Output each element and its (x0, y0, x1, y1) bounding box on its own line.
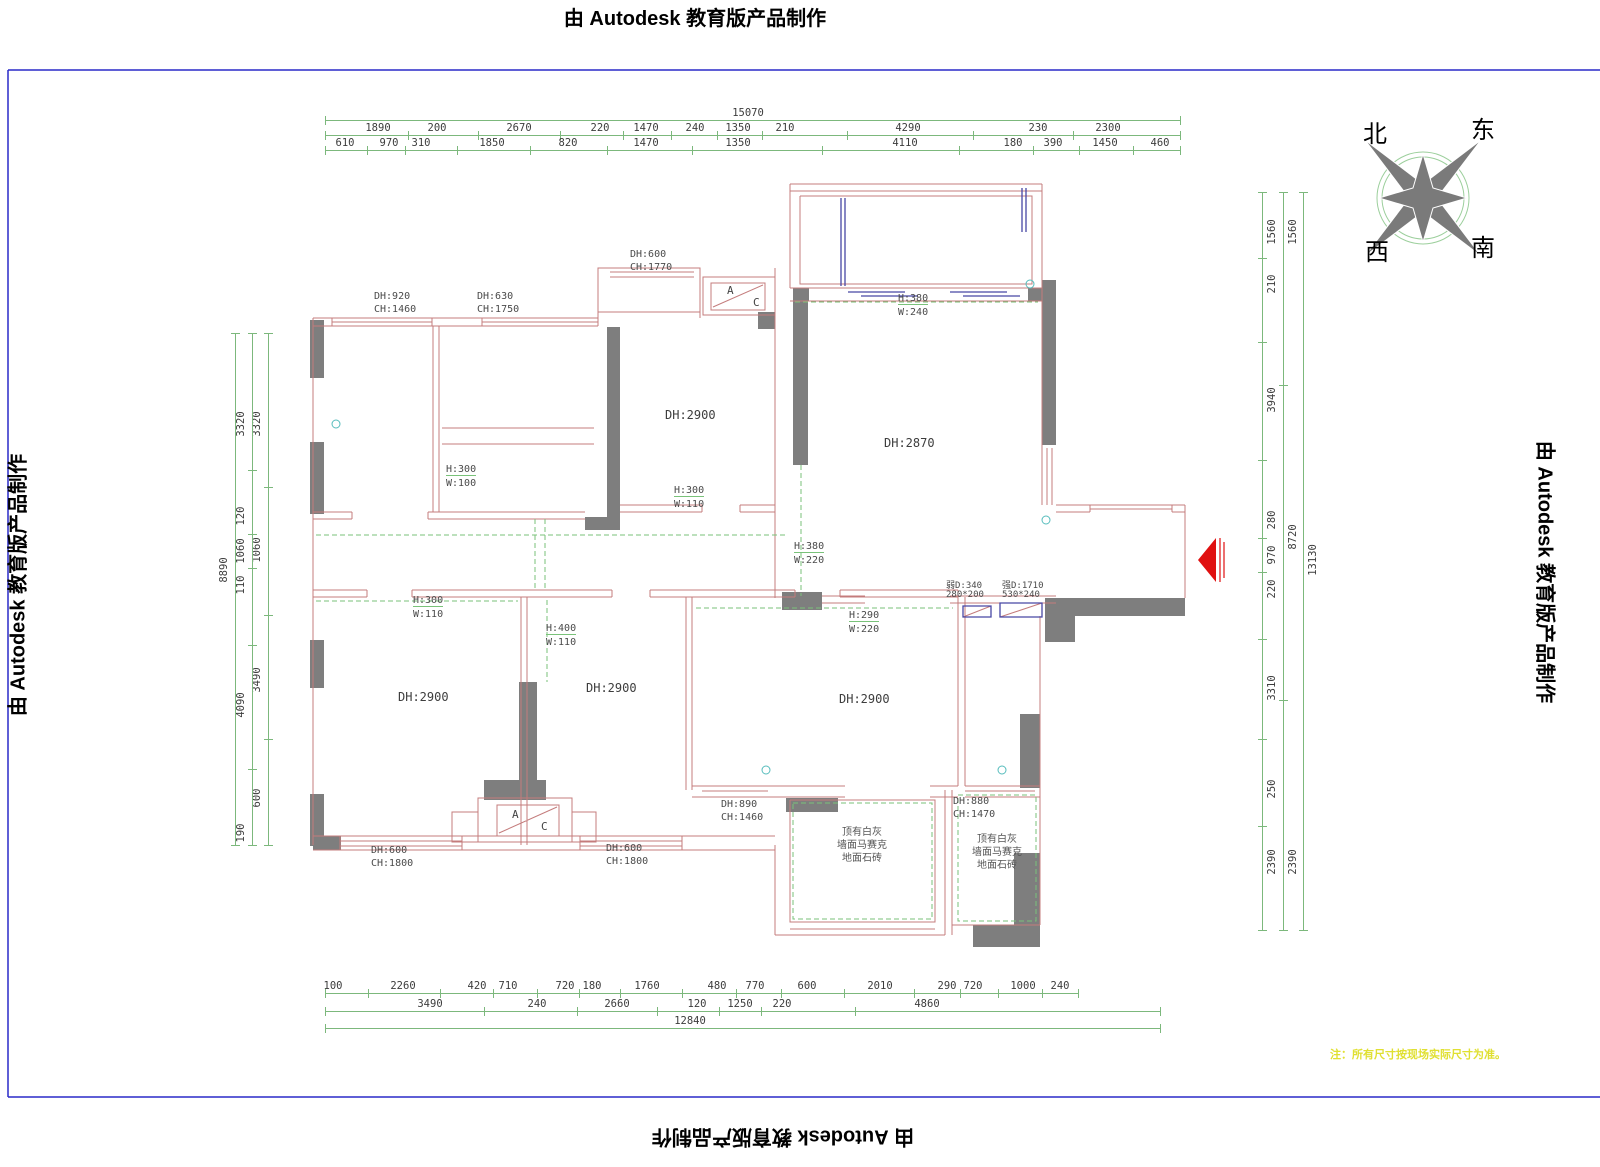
dim-tick (1078, 989, 1079, 998)
dim-tick (1042, 989, 1043, 998)
dim-value: 180 (1004, 137, 1023, 149)
dim-value: 3310 (1266, 675, 1278, 700)
dim-tick (248, 534, 257, 535)
dim-tick (248, 568, 257, 569)
dim-tick (325, 131, 326, 140)
plan-label: W:240 (898, 307, 928, 318)
plan-label: DH:600 (606, 843, 642, 854)
dim-line-top-row1 (325, 135, 1180, 136)
dim-value: 4290 (895, 122, 920, 134)
dim-tick (264, 739, 273, 740)
plan-label: W:220 (794, 555, 824, 566)
dim-value: 280 (1266, 511, 1278, 530)
dim-line-top-row2 (325, 150, 1180, 151)
dim-tick (692, 146, 693, 155)
dim-line-left-col-total (235, 333, 236, 845)
plan-label: H:400 (546, 623, 576, 635)
dim-value: 1000 (1010, 980, 1035, 992)
dim-value: 3320 (235, 411, 247, 436)
dim-tick (325, 116, 326, 125)
plan-label: DH:630 (477, 291, 513, 302)
dim-tick (248, 470, 257, 471)
dim-tick (325, 1024, 326, 1033)
balcony-doors-blue (841, 188, 1042, 617)
dim-tick (248, 645, 257, 646)
dim-line-right-col-total (1303, 192, 1304, 930)
plan-label: CH:1750 (477, 304, 519, 315)
dim-tick (1258, 639, 1267, 640)
site-dimension-note: 注：所有尺寸按现场实际尺寸为准。 (1330, 1046, 1506, 1062)
dim-value: 240 (528, 998, 547, 1010)
dim-value: 770 (746, 980, 765, 992)
plan-label: W:100 (446, 478, 476, 489)
dim-value: 100 (324, 980, 343, 992)
plan-label: 地面石砖 (842, 849, 882, 864)
dim-tick (579, 989, 580, 998)
dim-tick (264, 615, 273, 616)
dim-tick (1258, 930, 1267, 931)
plan-label: C (541, 820, 548, 833)
dim-tick (405, 146, 406, 155)
plan-label: DH:920 (374, 291, 410, 302)
plan-label: 280*200 (946, 590, 984, 600)
dim-tick (781, 989, 782, 998)
dim-value: 2010 (867, 980, 892, 992)
dim-tick (1258, 342, 1267, 343)
compass-south-label: 南 (1471, 234, 1495, 262)
plan-label: H:300 (413, 595, 443, 607)
dim-tick (959, 146, 960, 155)
dim-value: 2300 (1095, 122, 1120, 134)
dim-tick (1258, 739, 1267, 740)
plan-label: CH:1770 (630, 262, 672, 273)
dim-tick (1258, 538, 1267, 539)
dim-tick (1160, 1007, 1161, 1016)
dim-tick (1299, 192, 1308, 193)
dim-line-top-total (325, 120, 1180, 121)
dim-value: 120 (235, 507, 247, 526)
compass-rose: 北 东 西 南 (1345, 110, 1510, 275)
plan-label: W:110 (674, 499, 704, 510)
dim-tick (1133, 146, 1134, 155)
dim-tick (530, 146, 531, 155)
dim-tick (1180, 116, 1181, 125)
dim-tick (440, 989, 441, 998)
dim-tick (717, 131, 718, 140)
dim-tick (657, 1007, 658, 1016)
entry-arrow (1198, 538, 1224, 582)
dim-value: 820 (559, 137, 578, 149)
dim-value: 230 (1029, 122, 1048, 134)
dim-value: 1890 (365, 122, 390, 134)
plan-label: C (753, 296, 760, 309)
dim-value: 290 (938, 980, 957, 992)
dim-tick (855, 1007, 856, 1016)
plan-label: DH:2870 (884, 436, 935, 450)
dim-tick (620, 989, 621, 998)
dim-value: 1470 (633, 122, 658, 134)
dim-value: 3940 (1266, 387, 1278, 412)
dim-line-right-col-inner (1262, 192, 1263, 930)
plan-label: W:110 (546, 637, 576, 648)
dim-value: 110 (235, 576, 247, 595)
dim-tick (264, 845, 273, 846)
dim-tick (264, 487, 273, 488)
dim-value: 200 (428, 122, 447, 134)
watermark-bottom: 由 Autodesk 教育版产品制作 (652, 1125, 914, 1154)
compass-north-label: 北 (1363, 120, 1387, 148)
dim-value: 8890 (218, 557, 230, 582)
plan-label: A (512, 808, 519, 821)
dim-line-bottom-row2 (325, 1011, 1160, 1012)
dim-value: 180 (583, 980, 602, 992)
dim-value: 1250 (727, 998, 752, 1010)
dim-value: 2260 (390, 980, 415, 992)
dim-tick (1279, 930, 1288, 931)
dim-tick (537, 989, 538, 998)
dim-value: 1560 (1266, 219, 1278, 244)
watermark-right: 由 Autodesk 教育版产品制作 (1533, 441, 1562, 703)
dim-tick (1033, 146, 1034, 155)
dim-value: 8720 (1287, 524, 1299, 549)
dim-value: 1350 (725, 137, 750, 149)
plan-label: DH:890 (721, 799, 757, 810)
dim-value: 2390 (1266, 849, 1278, 874)
dim-tick (719, 1007, 720, 1016)
plan-label: 530*240 (1002, 590, 1040, 600)
dim-value: 610 (336, 137, 355, 149)
dim-tick (408, 131, 409, 140)
dim-tick (1073, 131, 1074, 140)
plan-label: CH:1460 (721, 812, 763, 823)
dim-value: 220 (773, 998, 792, 1010)
dim-tick (231, 333, 240, 334)
dim-value: 480 (708, 980, 727, 992)
dim-tick (762, 131, 763, 140)
dim-value: 240 (1051, 980, 1070, 992)
dim-value: 12840 (674, 1015, 706, 1027)
dim-value: 220 (591, 122, 610, 134)
dim-tick (1258, 460, 1267, 461)
dim-value: 13130 (1307, 544, 1319, 576)
dim-tick (1299, 930, 1308, 931)
dim-tick (1258, 826, 1267, 827)
dim-tick (367, 146, 368, 155)
plan-label: H:300 (674, 485, 704, 497)
dim-value: 1060 (235, 538, 247, 563)
dim-tick (1258, 258, 1267, 259)
dim-tick (368, 989, 369, 998)
dim-line-bottom-row1 (325, 993, 1078, 994)
dim-tick (1160, 1024, 1161, 1033)
dim-tick (1279, 385, 1288, 386)
dim-value: 970 (1266, 546, 1278, 565)
dim-tick (960, 989, 961, 998)
dim-tick (822, 146, 823, 155)
floorplan-canvas: 北 东 西 南 由 Autodesk 教育版产品制作 由 Autodesk 教育… (0, 0, 1600, 1167)
dim-value: 2390 (1287, 849, 1299, 874)
dim-value: 460 (1151, 137, 1170, 149)
dim-value: 3490 (417, 998, 442, 1010)
watermark-left: 由 Autodesk 教育版产品制作 (2, 454, 31, 716)
dim-tick (973, 131, 974, 140)
dim-tick (231, 845, 240, 846)
dim-value: 120 (688, 998, 707, 1010)
dim-value: 15070 (732, 107, 764, 119)
dim-tick (1180, 146, 1181, 155)
dim-value: 220 (1266, 580, 1278, 599)
dim-tick (1258, 192, 1267, 193)
dim-tick (682, 989, 683, 998)
dim-tick (1258, 572, 1267, 573)
plan-label: W:220 (849, 624, 879, 635)
dim-value: 1450 (1092, 137, 1117, 149)
dim-value: 240 (686, 122, 705, 134)
plan-label: CH:1460 (374, 304, 416, 315)
dim-value: 970 (380, 137, 399, 149)
dim-tick (457, 146, 458, 155)
plan-label: A (727, 284, 734, 297)
plan-label: W:110 (413, 609, 443, 620)
plan-label: CH:1800 (606, 856, 648, 867)
dim-tick (1180, 131, 1181, 140)
dim-tick (736, 989, 737, 998)
plan-label: H:380 (898, 293, 928, 305)
plan-label: DH:2900 (665, 408, 716, 422)
dim-value: 210 (1266, 275, 1278, 294)
dim-tick (998, 989, 999, 998)
plan-label: DH:880 (953, 796, 989, 807)
dim-value: 1470 (633, 137, 658, 149)
dim-tick (607, 146, 608, 155)
dim-tick (1279, 192, 1288, 193)
dim-value: 310 (412, 137, 431, 149)
plan-label: CH:1470 (953, 809, 995, 820)
dim-tick (248, 769, 257, 770)
plan-label: DH:2900 (839, 692, 890, 706)
plan-label: CH:1800 (371, 858, 413, 869)
dim-value: 250 (1266, 780, 1278, 799)
dim-value: 720 (964, 980, 983, 992)
plan-label: DH:600 (630, 249, 666, 260)
dim-line-bottom-total (325, 1028, 1160, 1029)
compass-east-label: 东 (1471, 116, 1495, 144)
dim-value: 190 (235, 824, 247, 843)
dim-tick (325, 1007, 326, 1016)
dim-value: 420 (468, 980, 487, 992)
dim-value: 2670 (506, 122, 531, 134)
dim-line-left-col-inner (268, 333, 269, 845)
compass-west-label: 西 (1365, 238, 1389, 266)
dim-value: 2660 (604, 998, 629, 1010)
plan-label: H:300 (446, 464, 476, 476)
dim-value: 4860 (914, 998, 939, 1010)
dim-value: 600 (798, 980, 817, 992)
plan-label: H:290 (849, 610, 879, 622)
dim-tick (248, 333, 257, 334)
dim-tick (325, 146, 326, 155)
dim-value: 4090 (235, 692, 247, 717)
dim-value: 1760 (634, 980, 659, 992)
plan-label: DH:2900 (586, 681, 637, 695)
dim-value: 720 (556, 980, 575, 992)
dim-value: 4110 (892, 137, 917, 149)
dim-tick (1279, 700, 1288, 701)
dim-tick (623, 131, 624, 140)
dim-value: 210 (776, 122, 795, 134)
dim-value: 710 (499, 980, 518, 992)
dim-value: 1850 (479, 137, 504, 149)
plan-label: DH:2900 (398, 690, 449, 704)
dim-tick (248, 845, 257, 846)
dim-tick (847, 131, 848, 140)
dim-value: 1350 (725, 122, 750, 134)
dim-tick (761, 1007, 762, 1016)
plan-label: DH:600 (371, 845, 407, 856)
dim-tick (914, 989, 915, 998)
dim-line-right-col-mid (1283, 192, 1284, 930)
dim-value: 390 (1044, 137, 1063, 149)
watermark-top: 由 Autodesk 教育版产品制作 (564, 2, 826, 31)
dim-tick (577, 1007, 578, 1016)
dim-tick (264, 333, 273, 334)
plan-label: 地面石砖 (977, 856, 1017, 871)
dim-tick (1079, 146, 1080, 155)
dim-tick (493, 989, 494, 998)
plan-label: H:380 (794, 541, 824, 553)
dim-tick (844, 989, 845, 998)
dim-value: 1560 (1287, 219, 1299, 244)
dim-tick (671, 131, 672, 140)
dim-tick (484, 1007, 485, 1016)
